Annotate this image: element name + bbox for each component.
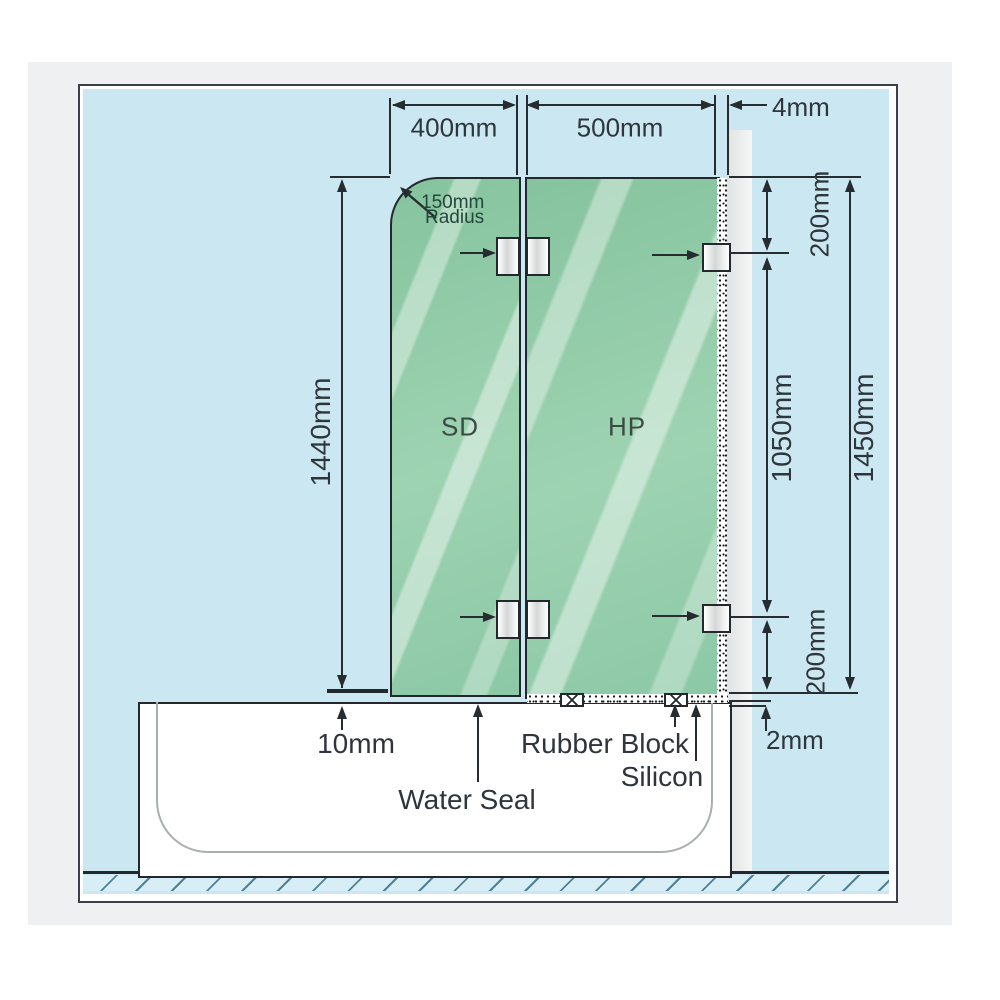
dim-500mm-arrow-right-icon (701, 100, 714, 110)
dim-1440mm-tick-bottom (327, 689, 388, 693)
silicon-arrow-icon (691, 704, 701, 717)
hinge-bottom-left-block (496, 600, 520, 639)
tie-line-bracket-top (729, 252, 789, 254)
dim-500mm-line (528, 104, 714, 106)
dim-200mm-top-arrow-up-icon (762, 179, 772, 192)
silicon-label: Silicon (621, 761, 703, 793)
dim-10mm-arrow-icon (337, 706, 347, 719)
hinge-bottom-right-block (526, 600, 550, 639)
diagram-page: 400mm 500mm 4mm 1440mm 150mm Radius SD H… (0, 0, 1000, 1000)
dim-1050mm-arrow-up-icon (762, 257, 772, 270)
bracket-bottom-arrow (652, 615, 692, 617)
bracket-top-arrowhead-icon (687, 250, 700, 260)
dim-1440mm-arrow-top-icon (337, 179, 347, 192)
wall-bracket-top (702, 243, 731, 272)
water-seal-label: Water Seal (398, 784, 535, 816)
dim-400mm-line (393, 104, 514, 106)
dim-1450mm-label: 1450mm (848, 374, 880, 483)
ext-line-panel-top (729, 176, 861, 178)
dim-200mm-top-arrow-down-icon (762, 238, 772, 251)
ext-line-panel-bottom (729, 692, 858, 694)
dim-4mm-label: 4mm (772, 92, 830, 123)
panel-sd-label: SD (441, 412, 479, 443)
dim-200mm-bottom-arrow-up-icon (762, 620, 772, 633)
silicon-seal-bottom (527, 694, 728, 703)
dim-400mm-label: 400mm (411, 113, 498, 144)
rubber-block-label: Rubber Block (521, 728, 689, 760)
rubber-block-arrow-icon (670, 704, 680, 717)
dim-1440mm-label: 1440mm (305, 378, 337, 487)
dim-2mm-arrow-icon (761, 706, 771, 719)
ext-line-seal-bottom (729, 700, 771, 702)
hinge-top-left-block (496, 237, 520, 276)
water-seal-stem (477, 712, 479, 782)
dim-2mm-label: 2mm (766, 725, 824, 756)
bracket-top-arrow (652, 254, 692, 256)
dim-1440mm-line (341, 181, 343, 688)
bracket-bottom-arrowhead-icon (687, 611, 700, 621)
dim-500mm-label: 500mm (577, 113, 664, 144)
hinge-top-arrowhead-icon (483, 248, 496, 258)
dim-200mm-bottom-arrow-down-icon (762, 677, 772, 690)
dim-200mm-bottom-label: 200mm (801, 609, 832, 696)
ext-line-divider-left (516, 95, 518, 175)
ext-line-hp-right (714, 95, 716, 175)
water-seal-arrow-icon (473, 704, 483, 717)
dim-200mm-top-label: 200mm (805, 171, 836, 258)
dim-1050mm-arrow-down-icon (762, 600, 772, 613)
hinge-top-right-block (526, 237, 550, 276)
dim-4mm-line (731, 104, 767, 106)
dim-400mm-arrow-left-icon (392, 100, 405, 110)
hinge-bottom-arrowhead-icon (483, 612, 496, 622)
dim-500mm-arrow-left-icon (526, 100, 539, 110)
tie-line-bracket-bottom (729, 616, 789, 618)
radius-note: 150mm Radius (421, 195, 484, 225)
silicon-stem (695, 711, 697, 761)
wall-bracket-bottom (702, 604, 731, 633)
dim-1450mm-arrow-down-icon (845, 677, 855, 690)
dim-1440mm-tick-top (330, 176, 390, 178)
dim-400mm-arrow-right-icon (503, 100, 516, 110)
dim-10mm-label: 10mm (317, 728, 395, 760)
dim-1450mm-arrow-up-icon (845, 179, 855, 192)
panel-hp-label: HP (608, 412, 646, 443)
dim-1440mm-arrow-bottom-icon (337, 675, 347, 688)
radius-note-line2: Radius (421, 210, 484, 225)
dim-1050mm-label: 1050mm (766, 374, 798, 483)
rubber-block-1 (560, 693, 584, 707)
